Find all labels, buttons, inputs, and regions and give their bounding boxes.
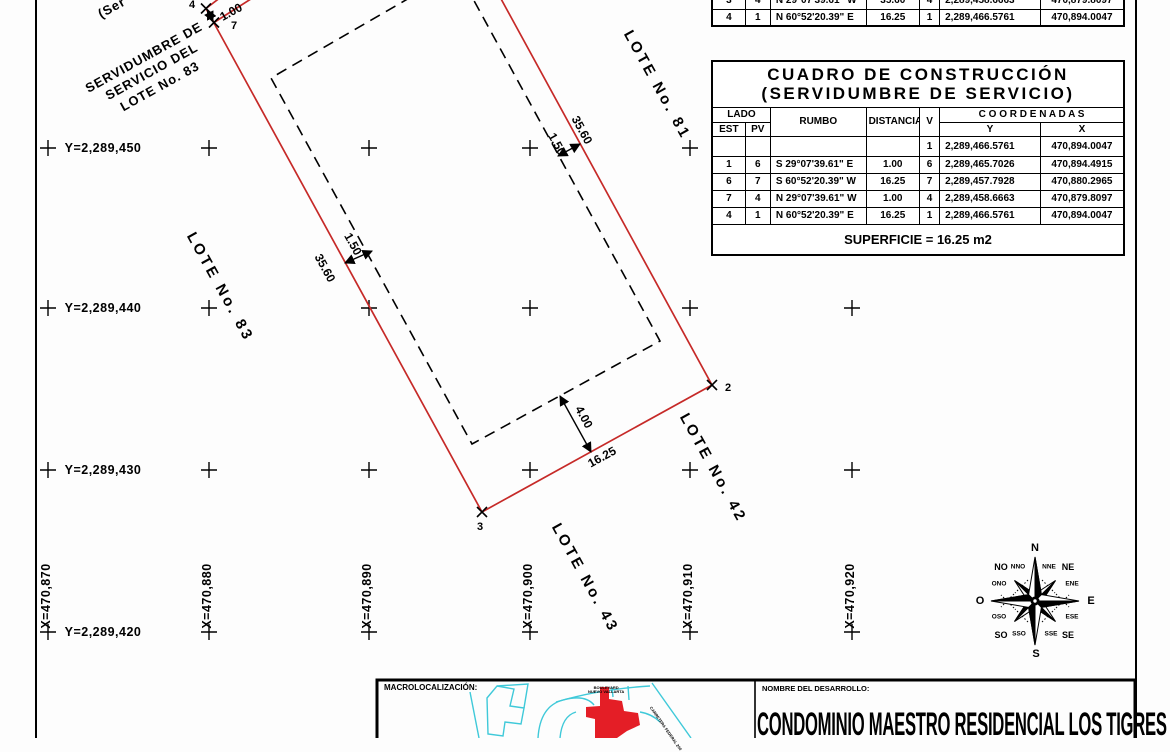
cell-est: 4	[712, 207, 745, 224]
cell-rumbo: N 29°07'39.61" W	[770, 0, 866, 9]
grid-x-label: X=470,880	[200, 563, 214, 628]
cell-est: 6	[712, 173, 745, 190]
compass-s: S	[1032, 648, 1039, 660]
table-title-line1: CUADRO DE CONSTRUCCIÓN	[715, 65, 1121, 85]
cell-distancia: 1.00	[866, 156, 919, 173]
cell-rumbo: N 29°07'39.61" W	[770, 190, 866, 207]
cell-v: 1	[919, 136, 939, 156]
cell-est: 1	[712, 156, 745, 173]
vertex-4-label: 4	[189, 0, 195, 11]
compass-nno: NNO	[1011, 564, 1025, 571]
compass-ne: NE	[1062, 562, 1075, 572]
cell-y: 2,289,465.7026	[940, 156, 1041, 173]
header-x: X	[1040, 122, 1124, 136]
cell-x: 470,894.4915	[1040, 156, 1124, 173]
table-row: 1 2,289,466.5761 470,894.0047	[712, 136, 1124, 156]
compass-e: E	[1087, 595, 1094, 607]
compass-sso: SSO	[1012, 631, 1026, 638]
table-row: 6 7 S 60°52'20.39" W 16.25 7 2,289,457.7…	[712, 173, 1124, 190]
cell-y: 2,289,466.5761	[940, 136, 1041, 156]
cell-distancia: 1.00	[866, 190, 919, 207]
cell-pv: 1	[745, 9, 770, 26]
grid-y-label: Y=2,289,420	[65, 625, 142, 639]
cell-v: 4	[919, 190, 939, 207]
compass-ese: ESE	[1065, 614, 1078, 621]
compass-se: SE	[1062, 630, 1074, 640]
map-boulevard-line2: NUEVO VALLARTA	[588, 690, 624, 694]
cell-x: 470,879.8097	[1040, 190, 1124, 207]
cell-pv: 4	[745, 0, 770, 9]
grid-y-label: Y=2,289,440	[65, 301, 142, 315]
header-pv: PV	[745, 122, 770, 136]
grid-x-label: X=470,870	[39, 563, 53, 628]
table-footer-row: SUPERFICIE = 16.25 m2	[712, 224, 1124, 255]
macrolocalizacion-label: MACROLOCALIZACIÓN:	[384, 683, 477, 692]
survey-sheet: { "colors":{"accent_red":"#c62a28","map_…	[0, 0, 1170, 738]
cell-distancia	[866, 136, 919, 156]
cell-v: 1	[919, 207, 939, 224]
table-header-row: LADO RUMBO DISTANCIA V C O O R D E N A D…	[712, 107, 1124, 122]
table-title-row: CUADRO DE CONSTRUCCIÓN (SERVIDUMBRE DE S…	[712, 61, 1124, 107]
cell-est: 3	[712, 0, 745, 9]
cell-y: 2,289,466.5761	[940, 207, 1041, 224]
compass-o: O	[976, 595, 985, 607]
lot-boundary	[206, 0, 712, 512]
table-title-line2: (SERVIDUMBRE DE SERVICIO)	[715, 84, 1121, 104]
cell-distancia: 16.25	[866, 9, 919, 26]
cell-est: 7	[712, 190, 745, 207]
cell-rumbo: S 60°52'20.39" W	[770, 173, 866, 190]
dimension-arrows	[208, 10, 592, 452]
cell-x: 470,879.8097	[1040, 0, 1124, 9]
cell-rumbo	[770, 136, 866, 156]
superficie-cell: SUPERFICIE = 16.25 m2	[712, 224, 1124, 255]
cell-distancia: 35.60	[866, 0, 919, 9]
grid-x-label: X=470,920	[843, 563, 857, 628]
development-name: CONDOMINIO MAESTRO RESIDENCIAL LOS TIGRE…	[757, 706, 1167, 743]
compass-nne: NNE	[1042, 564, 1056, 571]
table-row: 3 4 N 29°07'39.61" W 35.60 4 2,289,458.6…	[712, 0, 1124, 9]
setback-dashed-outline	[271, 0, 660, 444]
cell-pv: 6	[745, 156, 770, 173]
compass-sse: SSE	[1044, 631, 1057, 638]
map-boulevard-label: BOULEVARD NUEVO VALLARTA	[588, 686, 624, 695]
cell-pv: 4	[745, 190, 770, 207]
cell-rumbo: N 60°52'20.39" E	[770, 207, 866, 224]
vertex-7-label: 7	[231, 20, 237, 32]
cell-v: 4	[919, 0, 939, 9]
header-y: Y	[940, 122, 1041, 136]
compass-ono: ONO	[992, 581, 1007, 588]
cell-x: 470,880.2965	[1040, 173, 1124, 190]
cell-v: 6	[919, 156, 939, 173]
cell-y: 2,289,457.7928	[940, 173, 1041, 190]
cell-rumbo: S 29°07'39.61" E	[770, 156, 866, 173]
vertex-3-label: 3	[477, 521, 483, 533]
cell-distancia: 16.25	[866, 207, 919, 224]
cell-est	[712, 136, 745, 156]
grid-x-label: X=470,890	[360, 563, 374, 628]
cell-y: 2,289,458.6663	[940, 190, 1041, 207]
servidumbre-construction-table: CUADRO DE CONSTRUCCIÓN (SERVIDUMBRE DE S…	[711, 60, 1125, 256]
macrolocation-map	[470, 683, 691, 738]
table-row: 4 1 N 60°52'20.39" E 16.25 1 2,289,466.5…	[712, 207, 1124, 224]
table-row: 1 6 S 29°07'39.61" E 1.00 6 2,289,465.70…	[712, 156, 1124, 173]
cell-x: 470,894.0047	[1040, 207, 1124, 224]
header-v: V	[919, 107, 939, 136]
header-lado: LADO	[712, 107, 770, 122]
cell-y: 2,289,458.6663	[940, 0, 1041, 9]
cell-v: 7	[919, 173, 939, 190]
table-row: 4 1 N 60°52'20.39" E 16.25 1 2,289,466.5…	[712, 9, 1124, 26]
cell-est: 4	[712, 9, 745, 26]
cell-v: 1	[919, 9, 939, 26]
header-distancia: DISTANCIA	[866, 107, 919, 136]
table-title: CUADRO DE CONSTRUCCIÓN (SERVIDUMBRE DE S…	[712, 61, 1124, 107]
grid-x-label: X=470,900	[521, 563, 535, 628]
compass-ene: ENE	[1065, 581, 1078, 588]
compass-oso: OSO	[992, 614, 1006, 621]
grid-y-label: Y=2,289,450	[65, 141, 142, 155]
header-est: EST	[712, 122, 745, 136]
nombre-desarrollo-label: NOMBRE DEL DESARROLLO:	[762, 684, 869, 693]
compass-so: SO	[994, 630, 1007, 640]
table-row: 7 4 N 29°07'39.61" W 1.00 4 2,289,458.66…	[712, 190, 1124, 207]
cell-pv: 1	[745, 207, 770, 224]
vertex-2-label: 2	[725, 382, 731, 394]
cell-pv: 7	[745, 173, 770, 190]
cell-rumbo: N 60°52'20.39" E	[770, 9, 866, 26]
header-rumbo: RUMBO	[770, 107, 866, 136]
cell-distancia: 16.25	[866, 173, 919, 190]
cell-pv	[745, 136, 770, 156]
cell-y: 2,289,466.5761	[940, 9, 1041, 26]
cell-x: 470,894.0047	[1040, 136, 1124, 156]
compass-n: N	[1031, 542, 1039, 554]
grid-x-label: X=470,910	[681, 563, 695, 628]
grid-y-label: Y=2,289,430	[65, 463, 142, 477]
compass-no: NO	[994, 562, 1008, 572]
header-coordenadas: C O O R D E N A D A S	[940, 107, 1124, 122]
lot-construction-table: 3 4 N 29°07'39.61" W 35.60 4 2,289,458.6…	[711, 0, 1125, 27]
vertex-markers	[201, 4, 717, 518]
cell-x: 470,894.0047	[1040, 9, 1124, 26]
